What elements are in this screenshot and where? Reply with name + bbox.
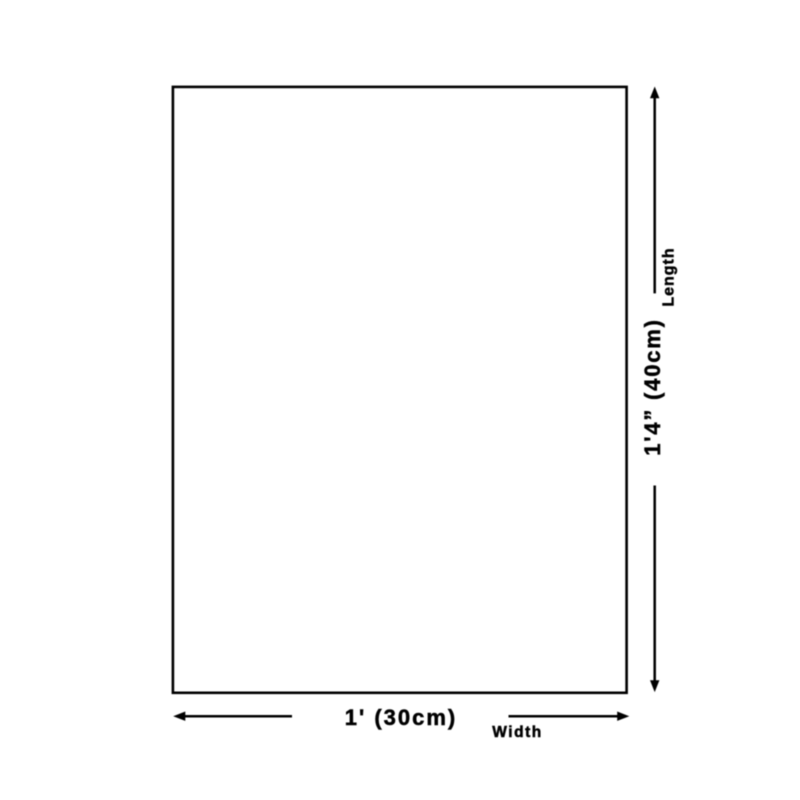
svg-text:Length: Length [661, 247, 678, 306]
svg-text:Width: Width [492, 724, 542, 741]
svg-text:1'4” (40cm): 1'4” (40cm) [640, 318, 665, 456]
svg-text:1' (30cm): 1' (30cm) [345, 705, 458, 730]
